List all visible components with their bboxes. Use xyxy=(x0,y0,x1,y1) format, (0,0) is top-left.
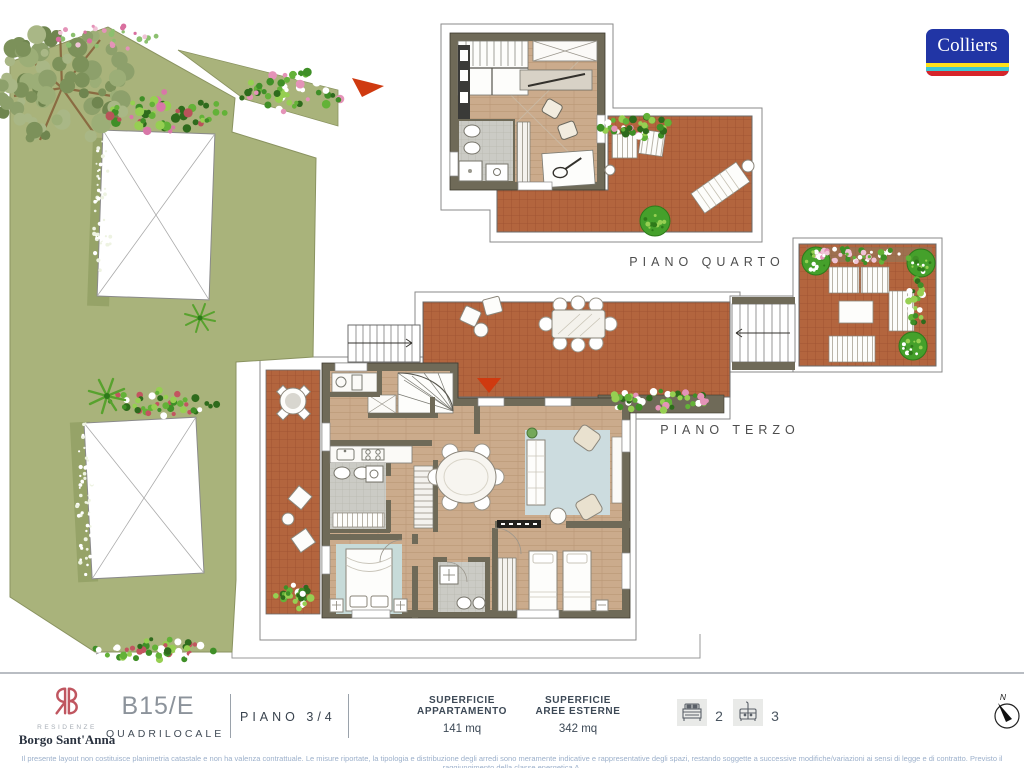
planter-row xyxy=(861,250,867,256)
bush-specks xyxy=(812,254,816,258)
bush-specks xyxy=(911,261,914,264)
white-flower-trail xyxy=(95,237,98,240)
white-flower-trail xyxy=(104,221,107,224)
bush-specks xyxy=(816,254,820,258)
bush-specks xyxy=(925,260,927,262)
white-flower-trail xyxy=(108,235,112,239)
ivy-row xyxy=(105,653,110,658)
planter-row xyxy=(670,391,676,397)
white-flower-trail xyxy=(97,189,101,193)
ivy-wedge xyxy=(306,97,310,101)
bush-specks xyxy=(654,214,657,217)
white-flower-trail xyxy=(82,434,85,437)
wardrobe xyxy=(498,558,516,611)
white-flower-trail xyxy=(109,242,112,245)
tree-foliage xyxy=(26,91,38,103)
planter-row xyxy=(700,398,707,405)
white-flower-trail xyxy=(83,472,87,476)
plant-cluster xyxy=(286,591,291,596)
shrub-row xyxy=(114,105,119,110)
tv-cabinet xyxy=(612,437,622,503)
ivy-row xyxy=(127,652,132,657)
white-flower-trail xyxy=(79,558,82,561)
white-flower-trail xyxy=(102,163,105,166)
white-flower-trail xyxy=(85,530,87,532)
bed-icon xyxy=(677,699,707,726)
white-flower-trail xyxy=(102,277,106,281)
ivy-column xyxy=(907,308,914,315)
planter-row xyxy=(213,401,220,408)
skylight-void-2 xyxy=(84,417,204,579)
flower-cluster xyxy=(109,31,115,37)
shrub-row xyxy=(140,118,146,124)
ivy-row xyxy=(157,645,165,653)
ivy-row xyxy=(149,637,153,641)
apartment-stair xyxy=(398,373,453,413)
orientation-marker-top xyxy=(352,78,384,97)
bedrooms-icon-box xyxy=(677,699,707,726)
ivy-wedge xyxy=(239,95,244,100)
ivy-row xyxy=(96,647,102,653)
white-flower-trail xyxy=(104,188,106,190)
white-flower-trail xyxy=(96,146,100,150)
bush-specks xyxy=(822,254,825,257)
shrub-row xyxy=(171,125,175,129)
floorplan-page: PIANO QUARTO PIANO TERZO Colliers RESIDE… xyxy=(0,0,1024,768)
planter-row xyxy=(180,406,187,413)
ivy-column xyxy=(919,315,924,320)
plant-cluster xyxy=(281,595,286,600)
plant-pot xyxy=(527,428,537,438)
side-table xyxy=(550,508,566,524)
planter-row xyxy=(664,119,672,127)
planter-row xyxy=(832,247,837,252)
planter-row xyxy=(693,393,697,397)
footer-bar: RESIDENZE Borgo Sant'Anna B15/E QUADRILO… xyxy=(0,672,1024,768)
ivy-wedge xyxy=(254,90,259,95)
white-flower-trail xyxy=(104,157,106,159)
white-flower-trail xyxy=(75,504,79,508)
ivy-wedge xyxy=(330,93,335,98)
planter-row xyxy=(669,405,674,410)
white-flower-trail xyxy=(105,243,109,247)
flower-cluster xyxy=(75,42,80,47)
ivy-wedge xyxy=(316,90,322,96)
ivy-row xyxy=(144,638,149,643)
ivy-wedge xyxy=(281,109,286,114)
tree-foliage xyxy=(52,114,63,125)
planter-row xyxy=(888,248,893,253)
planter-row xyxy=(845,257,850,262)
ivy-wedge xyxy=(244,89,251,96)
ivy-wedge xyxy=(264,102,271,109)
tree-foliage xyxy=(98,88,106,96)
planter-row xyxy=(685,404,690,409)
white-flower-trail xyxy=(77,514,81,518)
white-flower-trail xyxy=(90,465,92,467)
planter-row xyxy=(122,405,127,410)
tree-foliage xyxy=(23,113,32,122)
ivy-row xyxy=(130,646,135,651)
bush-specks xyxy=(909,351,913,355)
ivy-wedge xyxy=(322,100,331,109)
bush-specks xyxy=(913,341,915,343)
planter-row xyxy=(191,394,199,402)
flower-cluster xyxy=(142,34,147,39)
planter-row xyxy=(145,410,151,416)
ivy-row xyxy=(167,637,173,643)
planter-row xyxy=(157,408,161,412)
bush-specks xyxy=(911,345,914,348)
bush-specks xyxy=(919,346,923,350)
white-flower-trail xyxy=(93,251,97,255)
tree-foliage xyxy=(109,70,126,87)
shrub-row xyxy=(149,102,155,108)
label-piano-terzo: PIANO TERZO xyxy=(660,423,800,437)
shrub-row xyxy=(161,89,167,95)
plant-cluster xyxy=(296,606,302,612)
ivy-row xyxy=(164,647,172,655)
white-flower-trail xyxy=(98,268,102,272)
tree-foliage xyxy=(75,73,90,88)
ivy-wedge xyxy=(274,90,281,97)
bush-specks xyxy=(917,267,921,271)
shrub-row xyxy=(198,100,204,106)
planter-row xyxy=(677,395,682,400)
shrub-row xyxy=(222,110,228,116)
ivy-wedge xyxy=(284,77,290,83)
white-flower-trail xyxy=(83,477,86,480)
ivy-wedge xyxy=(262,89,267,94)
plant-cluster xyxy=(302,601,307,606)
white-flower-trail xyxy=(85,501,88,504)
planter-row xyxy=(690,401,695,406)
bush-specks xyxy=(650,222,654,226)
white-flower-trail xyxy=(103,192,107,196)
planter-row xyxy=(135,398,141,404)
white-flower-trail xyxy=(88,513,91,516)
flower-cluster xyxy=(112,39,116,43)
bathrooms-icon-box xyxy=(733,699,763,726)
bathroom-icon xyxy=(733,699,763,726)
white-flower-trail xyxy=(89,533,93,537)
bush-specks xyxy=(651,229,653,231)
ivy-wedge xyxy=(339,87,348,96)
flower-cluster xyxy=(121,24,126,29)
white-flower-trail xyxy=(78,450,80,452)
ivy-wedge xyxy=(295,75,301,81)
planter-row xyxy=(605,119,612,126)
tree-foliage xyxy=(38,70,56,88)
aree-esterne-value: 342 mq xyxy=(512,723,644,735)
shrub-row xyxy=(106,111,115,120)
tree-foliage xyxy=(16,42,31,57)
bush-specks xyxy=(644,217,648,221)
bush-specks xyxy=(921,268,925,272)
white-flower-trail xyxy=(84,573,87,576)
bush-specks xyxy=(902,342,906,346)
ivy-wedge xyxy=(286,100,292,106)
planter-row xyxy=(197,407,202,412)
flower-cluster xyxy=(66,42,72,48)
white-flower-trail xyxy=(103,219,105,221)
ivy-row xyxy=(210,648,217,655)
white-flower-trail xyxy=(99,163,103,167)
quarto-wardrobe xyxy=(517,122,530,182)
bush-specks xyxy=(809,267,813,271)
quarto-bathroom xyxy=(458,120,514,182)
bush-specks xyxy=(922,264,925,267)
white-flower-trail xyxy=(79,494,83,498)
white-flower-trail xyxy=(96,163,98,165)
planter-row xyxy=(162,402,169,409)
planter-row xyxy=(906,255,912,261)
bush-specks xyxy=(815,266,819,270)
white-flower-trail xyxy=(100,242,102,244)
white-flower-trail xyxy=(84,422,86,424)
terrace-side-table-2 xyxy=(742,160,754,172)
planter-row xyxy=(174,391,180,397)
bush-specks xyxy=(658,220,663,225)
bush-specks xyxy=(645,222,650,227)
ivy-row xyxy=(184,645,190,651)
white-flower-trail xyxy=(79,483,83,487)
white-flower-trail xyxy=(79,487,81,489)
bush-specks xyxy=(812,262,816,266)
white-flower-trail xyxy=(98,169,100,171)
bush-specks xyxy=(917,263,919,265)
compass-north-label: N xyxy=(1000,692,1007,702)
planter-row xyxy=(627,125,633,131)
white-flower-trail xyxy=(89,525,92,528)
ivy-row xyxy=(171,655,177,661)
white-flower-trail xyxy=(100,245,103,248)
planter-row xyxy=(141,406,145,410)
planter-row xyxy=(628,406,635,413)
flower-cluster xyxy=(126,46,130,50)
white-flower-trail xyxy=(106,170,109,173)
white-flower-trail xyxy=(97,197,101,201)
white-flower-trail xyxy=(96,258,100,262)
tree-foliage xyxy=(41,49,49,57)
white-flower-trail xyxy=(103,289,106,292)
planter-row xyxy=(164,395,169,400)
bush-specks xyxy=(911,266,913,268)
unit-type: QUADRILOCALE xyxy=(106,728,210,740)
ivy-wedge xyxy=(248,80,254,86)
white-flower-trail xyxy=(90,481,94,485)
ivy-wedge xyxy=(265,93,271,99)
planter-row xyxy=(646,395,652,401)
ivy-row xyxy=(193,642,197,646)
tree-foliage xyxy=(37,86,56,105)
bush-specks xyxy=(925,266,928,269)
shrub-row xyxy=(155,121,164,130)
white-flower-trail xyxy=(83,447,85,449)
ivy-row xyxy=(120,652,128,660)
ivy-row xyxy=(189,653,197,661)
white-flower-trail xyxy=(78,560,82,564)
tree-foliage xyxy=(60,78,75,93)
white-flower-trail xyxy=(105,150,107,152)
shrub-row xyxy=(200,118,205,123)
shrub-row xyxy=(135,107,144,116)
ivy-wedge xyxy=(336,97,342,103)
white-flower-trail xyxy=(101,262,105,266)
plant-cluster xyxy=(307,594,315,602)
planter-row xyxy=(862,255,865,258)
bathroom-2 xyxy=(438,562,485,612)
flower-cluster xyxy=(63,27,68,32)
bedside-unit xyxy=(596,600,608,611)
planter-row xyxy=(177,400,184,407)
shrub-row xyxy=(193,119,199,125)
bathroom-1 xyxy=(330,463,386,529)
planter-row xyxy=(635,133,642,140)
planter-row xyxy=(825,251,830,256)
unit-code: B15/E xyxy=(106,692,210,721)
planter-row xyxy=(870,251,873,254)
superficie-appartamento: SUPERFICIE APPARTAMENTO 141 mq xyxy=(396,695,528,735)
ivy-wedge xyxy=(312,78,321,87)
white-flower-trail xyxy=(101,141,103,143)
flower-cluster xyxy=(144,40,148,44)
plant-cluster xyxy=(284,585,288,589)
left-terrace-table xyxy=(282,513,294,525)
ivy-row xyxy=(185,639,192,646)
shrub-row xyxy=(171,114,180,123)
white-flower-trail xyxy=(79,465,83,469)
planter-row xyxy=(898,252,901,255)
planter-row xyxy=(151,404,157,410)
ivy-column xyxy=(905,298,912,305)
ivy-wedge xyxy=(277,79,285,87)
planter-row xyxy=(135,407,141,413)
master-bedroom xyxy=(330,544,407,614)
bush-specks xyxy=(915,352,918,355)
white-flower-trail xyxy=(105,235,107,237)
ivy-wedge xyxy=(323,87,330,94)
flower-cluster xyxy=(71,33,76,38)
tree-foliage xyxy=(27,25,46,44)
planter-row xyxy=(633,398,638,403)
label-piano-quarto: PIANO QUARTO xyxy=(629,255,784,269)
flower-cluster xyxy=(134,32,137,35)
white-flower-trail xyxy=(79,475,81,477)
ivy-column xyxy=(921,319,926,324)
planter-row xyxy=(621,127,625,131)
white-flower-trail xyxy=(98,222,102,226)
colliers-wordmark: Colliers xyxy=(926,29,1009,63)
planter-row xyxy=(643,128,649,134)
white-flower-trail xyxy=(84,537,88,541)
shrub-row xyxy=(213,109,220,116)
stairs-quarto-terzo xyxy=(348,325,420,362)
ivy-wedge xyxy=(292,104,297,109)
planter-row xyxy=(660,406,667,413)
planter-row xyxy=(871,258,876,263)
flower-cluster xyxy=(137,36,143,42)
planter-row xyxy=(155,391,159,395)
planter-row xyxy=(204,401,209,406)
bush-specks xyxy=(805,260,808,263)
terrace-side-table-1 xyxy=(605,165,615,175)
planter-row xyxy=(611,391,618,398)
bush-specks xyxy=(906,339,911,344)
planter-row xyxy=(846,253,849,256)
planter-row xyxy=(617,404,623,410)
ivy-column xyxy=(906,288,912,294)
tree-foliage xyxy=(0,96,14,110)
tree-foliage xyxy=(72,56,89,73)
appartamento-value: 141 mq xyxy=(396,723,528,735)
appartamento-label: APPARTAMENTO xyxy=(396,706,528,717)
skylight-void-1 xyxy=(97,130,215,300)
white-flower-trail xyxy=(88,499,91,502)
flower-cluster xyxy=(83,31,86,34)
rb-monogram-logo xyxy=(45,684,89,718)
superficie-label: SUPERFICIE xyxy=(396,695,528,706)
plant-cluster xyxy=(293,599,298,604)
flower-cluster xyxy=(102,28,107,33)
white-flower-trail xyxy=(104,183,106,185)
quarto-closet xyxy=(533,41,597,61)
superficie-esterne: SUPERFICIE AREE ESTERNE 342 mq xyxy=(512,695,644,735)
ivy-column xyxy=(913,313,919,319)
white-flower-trail xyxy=(88,555,92,559)
ivy-wedge xyxy=(284,88,288,92)
white-flower-trail xyxy=(85,457,88,460)
white-flower-trail xyxy=(88,495,90,497)
bush-specks xyxy=(910,348,913,351)
planter-row xyxy=(149,392,156,399)
planter-row xyxy=(635,404,642,411)
planter-row xyxy=(684,395,690,401)
sun-lounger-striped-1 xyxy=(612,134,637,158)
planter-row xyxy=(650,388,657,395)
white-flower-trail xyxy=(85,557,88,560)
ivy-column xyxy=(917,307,923,313)
bush-specks xyxy=(902,347,905,350)
ivy-column xyxy=(918,282,924,288)
plant-cluster xyxy=(300,591,306,597)
flower-cluster xyxy=(56,37,61,42)
white-flower-trail xyxy=(96,233,100,237)
bathrooms-count: 3 xyxy=(766,708,784,724)
shrub-row xyxy=(203,103,209,109)
shrub-row xyxy=(129,115,133,119)
white-flower-trail xyxy=(93,200,97,204)
planter-row xyxy=(858,255,863,260)
white-flower-trail xyxy=(94,210,97,213)
unit-block: B15/E QUADRILOCALE xyxy=(106,692,210,740)
ivy-row xyxy=(146,650,152,656)
planter-row xyxy=(183,397,188,402)
ivy-wedge xyxy=(256,83,262,89)
white-flower-trail xyxy=(86,524,90,528)
ivy-wedge xyxy=(296,80,305,89)
planter-row xyxy=(659,389,664,394)
plant-cluster xyxy=(291,583,296,588)
flower-cluster xyxy=(94,44,98,48)
white-flower-trail xyxy=(84,466,88,470)
planter-row xyxy=(623,118,630,125)
shrub-row xyxy=(140,96,145,101)
bush-specks xyxy=(916,339,921,344)
ivy-row xyxy=(174,638,181,645)
flower-cluster xyxy=(92,25,95,28)
planter-row xyxy=(853,256,856,259)
